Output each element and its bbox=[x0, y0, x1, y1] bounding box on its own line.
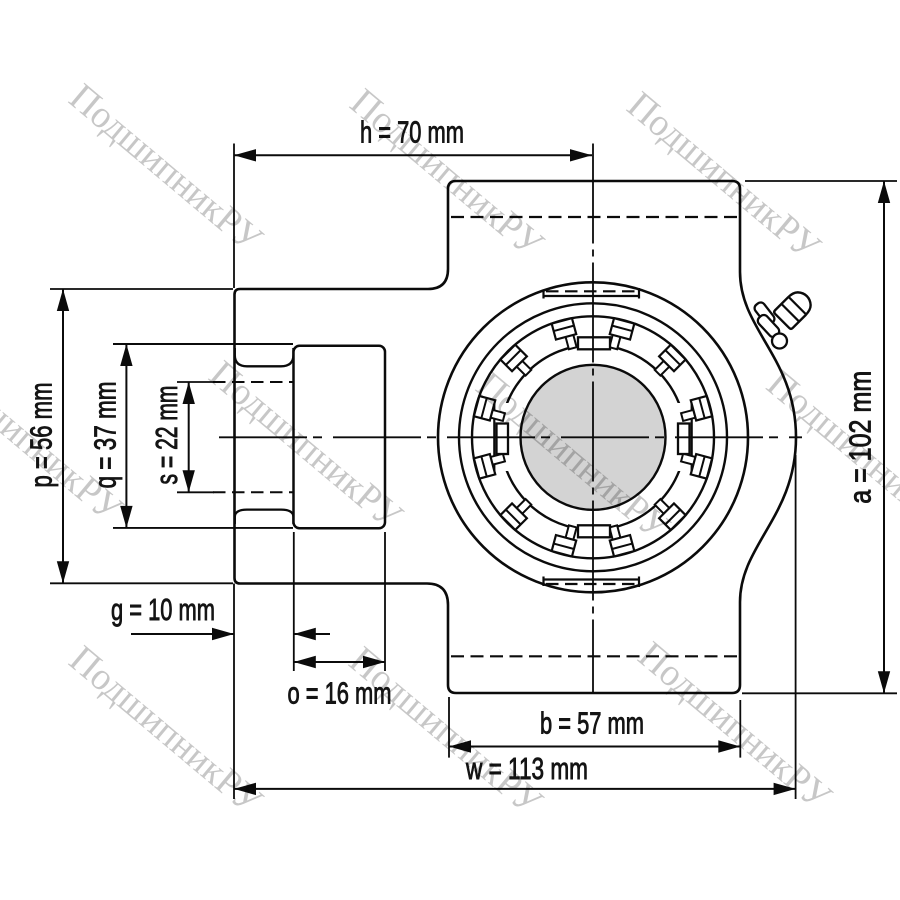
svg-text:s = 22 mm: s = 22 mm bbox=[149, 386, 184, 485]
svg-text:b = 57 mm: b = 57 mm bbox=[540, 706, 644, 741]
svg-text:g = 10 mm: g = 10 mm bbox=[111, 592, 215, 627]
